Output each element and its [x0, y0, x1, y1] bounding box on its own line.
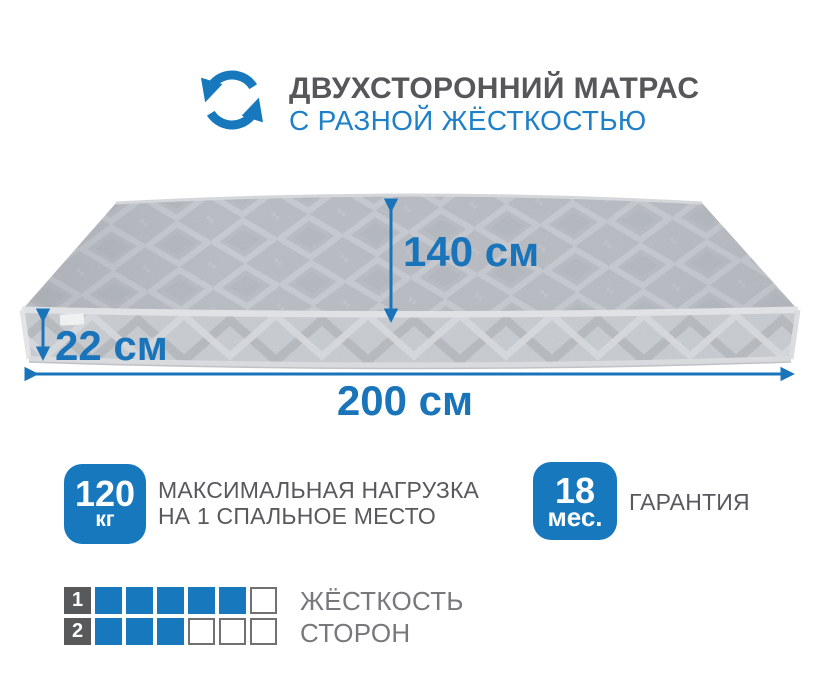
hardness-row-2: 2 [64, 618, 277, 645]
hardness-row-1: 1 [64, 587, 277, 614]
hardness-cell-filled [157, 618, 184, 645]
max-load-description: МАКСИМАЛЬНАЯ НАГРУЗКА НА 1 СПАЛЬНОЕ МЕСТ… [158, 477, 479, 529]
hardness-grid: 1 2 [64, 587, 277, 645]
warranty-description: ГАРАНТИЯ [629, 489, 750, 515]
hardness-cell-filled [95, 587, 122, 614]
hardness-cell-empty [188, 618, 215, 645]
hardness-cell-filled [95, 618, 122, 645]
page-subtitle: С РАЗНОЙ ЖЁСТКОСТЬЮ [289, 105, 646, 137]
hardness-row-1-cells [95, 587, 277, 614]
max-load-badge: 120 кг [64, 464, 146, 544]
hardness-row-2-cells [95, 618, 277, 645]
width-dimension-label: 140 см [403, 231, 539, 273]
hardness-cell-filled [126, 587, 153, 614]
warranty-badge: 18 мес. [533, 462, 617, 540]
page-title: ДВУХСТОРОННИЙ МАТРАС [289, 72, 699, 106]
hardness-label-line2: СТОРОН [300, 620, 410, 647]
hardness-row-1-index: 1 [64, 587, 91, 614]
hardness-cell-filled [126, 618, 153, 645]
max-load-description-line1: МАКСИМАЛЬНАЯ НАГРУЗКА [158, 477, 479, 503]
hardness-cell-filled [157, 587, 184, 614]
height-dimension-label: 22 см [55, 325, 168, 367]
hardness-cell-empty [250, 587, 277, 614]
hardness-cell-empty [250, 618, 277, 645]
warranty-unit: мес. [547, 507, 602, 527]
rotate-arrows-icon [196, 58, 268, 142]
max-load-value: 120 [75, 478, 135, 510]
max-load-description-line2: НА 1 СПАЛЬНОЕ МЕСТО [158, 503, 479, 529]
hardness-label-line1: ЖЁСТКОСТЬ [300, 588, 464, 615]
hardness-row-2-index: 2 [64, 618, 91, 645]
hardness-cell-empty [219, 618, 246, 645]
hardness-cell-filled [219, 587, 246, 614]
length-dimension-label: 200 см [300, 380, 510, 422]
hardness-cell-filled [188, 587, 215, 614]
max-load-unit: кг [95, 510, 114, 530]
